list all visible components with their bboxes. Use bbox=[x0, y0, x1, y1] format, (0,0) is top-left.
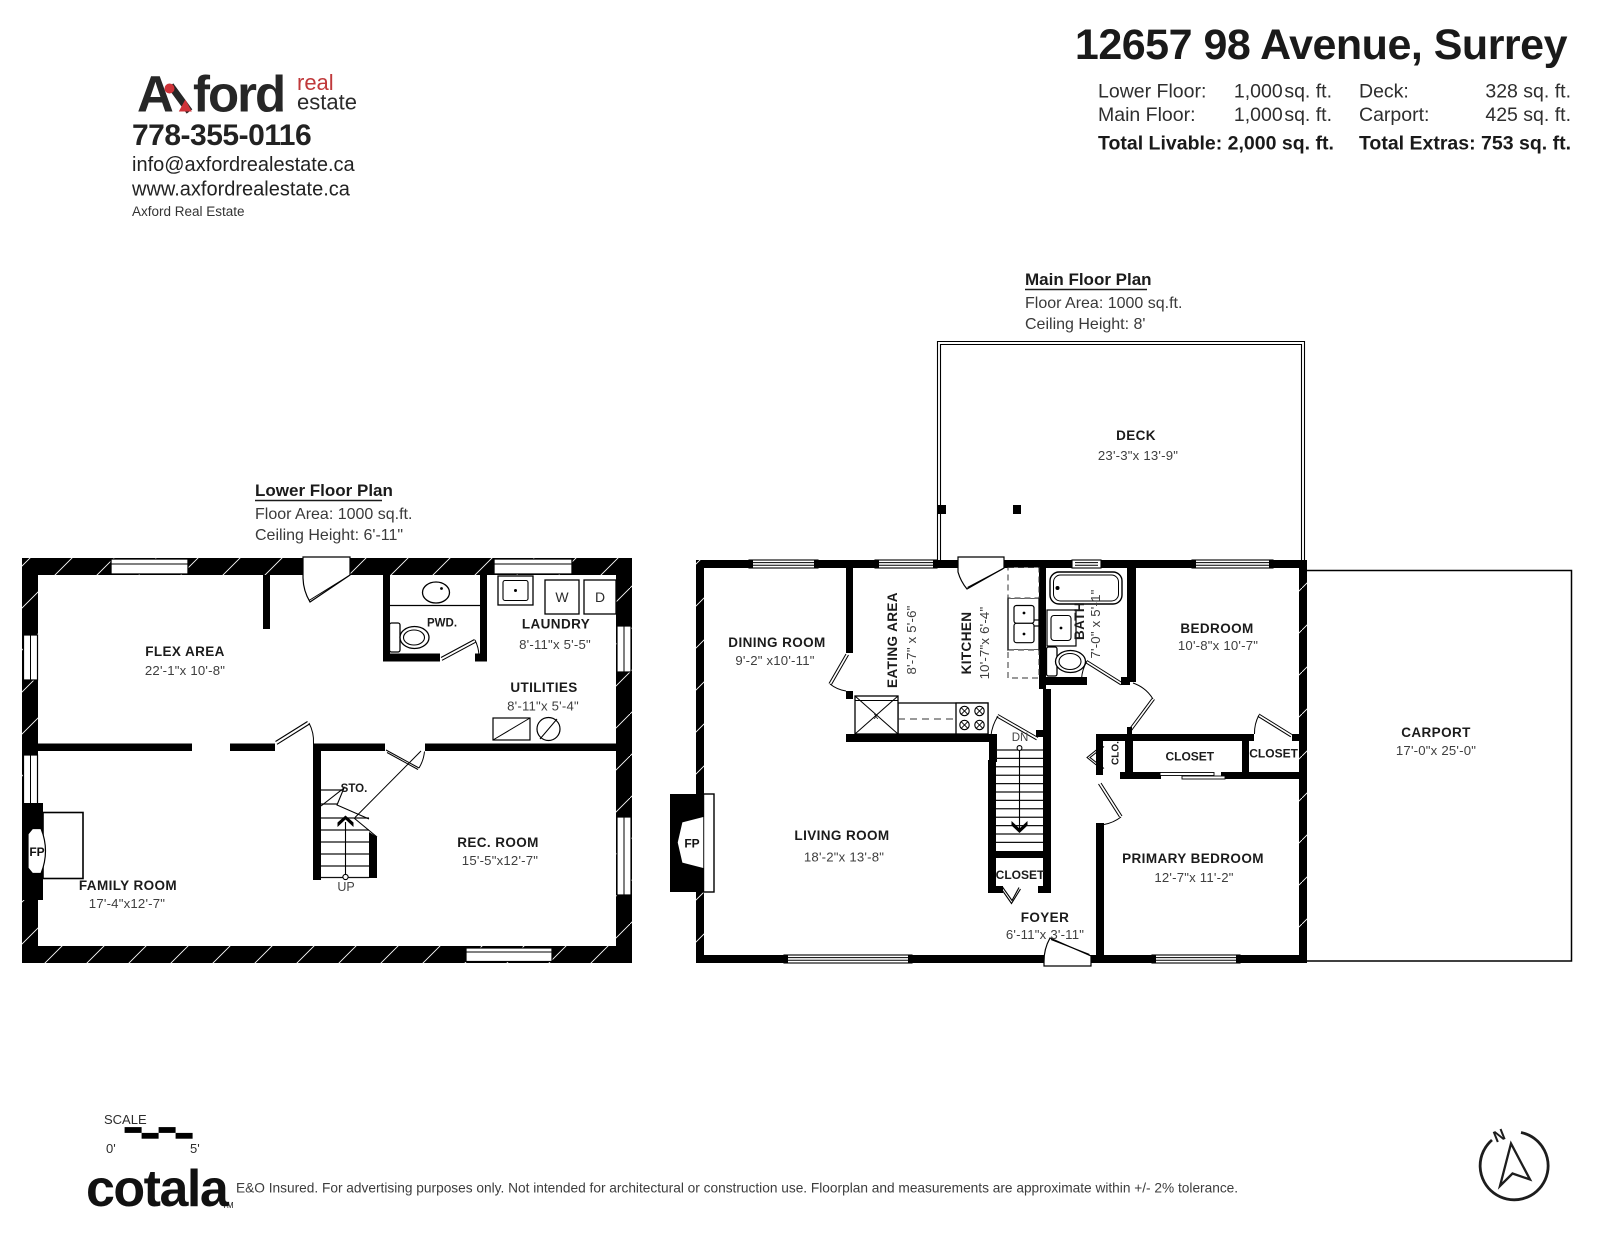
svg-text:Deck:: Deck: bbox=[1359, 81, 1409, 103]
svg-text:LIVING ROOM: LIVING ROOM bbox=[794, 828, 889, 843]
svg-text:DN: DN bbox=[1012, 732, 1029, 744]
svg-text:23'-3"x 13'-9": 23'-3"x 13'-9" bbox=[1098, 448, 1178, 463]
svg-text:Floor Area: 1000 sq.ft.: Floor Area: 1000 sq.ft. bbox=[1025, 295, 1182, 312]
svg-text:9'-2" x10'-11": 9'-2" x10'-11" bbox=[735, 653, 814, 668]
svg-text:425 sq. ft.: 425 sq. ft. bbox=[1485, 104, 1571, 126]
svg-text:7'-0" x 5'-1": 7'-0" x 5'-1" bbox=[1088, 589, 1103, 658]
svg-text:1,000 sq. ft.: 1,000 sq. ft. bbox=[1234, 104, 1332, 126]
svg-text:EATING AREA: EATING AREA bbox=[885, 592, 900, 688]
svg-text:CLOSET: CLOSET bbox=[996, 868, 1045, 882]
svg-text:Lower Floor:: Lower Floor: bbox=[1098, 81, 1206, 103]
svg-text:FP: FP bbox=[684, 837, 699, 851]
svg-text:FAMILY ROOM: FAMILY ROOM bbox=[79, 878, 177, 893]
svg-text:x: x bbox=[874, 711, 879, 721]
svg-text:18'-2"x 13'-8": 18'-2"x 13'-8" bbox=[804, 850, 884, 865]
svg-text:PRIMARY BEDROOM: PRIMARY BEDROOM bbox=[1122, 851, 1264, 866]
svg-text:6'-11"x 3'-11": 6'-11"x 3'-11" bbox=[1006, 927, 1084, 942]
svg-text:FOYER: FOYER bbox=[1021, 910, 1070, 925]
svg-text:8'-11"x 5'-5": 8'-11"x 5'-5" bbox=[519, 637, 591, 652]
svg-text:328 sq. ft.: 328 sq. ft. bbox=[1485, 81, 1571, 103]
svg-text:UP: UP bbox=[337, 880, 354, 894]
svg-text:Carport:: Carport: bbox=[1359, 104, 1429, 126]
svg-text:TM: TM bbox=[222, 1201, 234, 1210]
svg-text:PWD.: PWD. bbox=[427, 618, 457, 630]
svg-text:Ceiling Height: 8': Ceiling Height: 8' bbox=[1025, 316, 1145, 333]
svg-text:FLEX AREA: FLEX AREA bbox=[145, 644, 225, 659]
svg-text:12657 98 Avenue, Surrey: 12657 98 Avenue, Surrey bbox=[1075, 21, 1568, 69]
svg-text:22'-1"x 10'-8": 22'-1"x 10'-8" bbox=[145, 663, 225, 678]
svg-text:Axford Real Estate: Axford Real Estate bbox=[132, 204, 245, 219]
svg-text:SCALE: SCALE bbox=[104, 1112, 147, 1127]
svg-text:15'-5"x12'-7": 15'-5"x12'-7" bbox=[462, 853, 538, 868]
svg-text:info@axfordrealestate.ca: info@axfordrealestate.ca bbox=[132, 154, 356, 176]
svg-text:Total Extras: 753 sq. ft.: Total Extras: 753 sq. ft. bbox=[1359, 133, 1571, 155]
svg-text:8'-11"x 5'-4": 8'-11"x 5'-4" bbox=[507, 699, 579, 714]
svg-text:REC. ROOM: REC. ROOM bbox=[457, 835, 539, 850]
svg-text:CLOSET: CLOSET bbox=[1165, 750, 1214, 764]
svg-text:FP: FP bbox=[29, 845, 44, 859]
svg-text:D: D bbox=[595, 589, 605, 605]
svg-text:1,000 sq. ft.: 1,000 sq. ft. bbox=[1234, 81, 1332, 103]
svg-text:W: W bbox=[555, 589, 569, 605]
svg-text:Main Floor Plan: Main Floor Plan bbox=[1025, 270, 1152, 289]
svg-text:Main Floor:: Main Floor: bbox=[1098, 104, 1196, 126]
svg-text:DINING ROOM: DINING ROOM bbox=[728, 635, 825, 650]
svg-text:A: A bbox=[137, 66, 173, 123]
svg-text:BATH: BATH bbox=[1072, 602, 1087, 640]
svg-text:estate: estate bbox=[297, 90, 357, 115]
svg-text:UTILITIES: UTILITIES bbox=[510, 680, 577, 695]
svg-text:Lower Floor Plan: Lower Floor Plan bbox=[255, 481, 393, 500]
svg-text:17'-4"x12'-7": 17'-4"x12'-7" bbox=[89, 896, 165, 911]
svg-text:STO.: STO. bbox=[341, 783, 368, 795]
svg-text:ford: ford bbox=[193, 66, 284, 123]
svg-text:DECK: DECK bbox=[1116, 428, 1156, 443]
svg-text:Total Livable: 2,000 sq. ft.: Total Livable: 2,000 sq. ft. bbox=[1098, 133, 1334, 155]
svg-text:5': 5' bbox=[190, 1141, 200, 1156]
svg-text:LAUNDRY: LAUNDRY bbox=[522, 617, 590, 632]
svg-text:10'-7"x 6'-4": 10'-7"x 6'-4" bbox=[977, 607, 992, 680]
svg-text:17'-0"x 25'-0": 17'-0"x 25'-0" bbox=[1396, 743, 1476, 758]
svg-text:12'-7"x 11'-2": 12'-7"x 11'-2" bbox=[1154, 870, 1233, 885]
svg-text:KITCHEN: KITCHEN bbox=[959, 612, 974, 675]
svg-text:778-355-0116: 778-355-0116 bbox=[132, 119, 311, 152]
svg-text:www.axfordrealestate.ca: www.axfordrealestate.ca bbox=[131, 179, 351, 201]
svg-text:CLO.: CLO. bbox=[1111, 741, 1122, 765]
svg-text:E&O Insured. For advertising p: E&O Insured. For advertising purposes on… bbox=[236, 1181, 1238, 1196]
svg-text:BEDROOM: BEDROOM bbox=[1180, 621, 1253, 636]
svg-text:Floor Area: 1000 sq.ft.: Floor Area: 1000 sq.ft. bbox=[255, 506, 412, 523]
svg-text:10'-8"x 10'-7": 10'-8"x 10'-7" bbox=[1178, 638, 1258, 653]
svg-text:8'-7" x 5'-6": 8'-7" x 5'-6" bbox=[904, 605, 919, 674]
svg-text:0': 0' bbox=[106, 1141, 116, 1156]
svg-text:CLOSET: CLOSET bbox=[1249, 747, 1298, 761]
svg-text:cotala: cotala bbox=[86, 1160, 230, 1218]
svg-text:CARPORT: CARPORT bbox=[1401, 725, 1471, 740]
svg-text:Ceiling Height: 6'-11": Ceiling Height: 6'-11" bbox=[255, 527, 403, 544]
